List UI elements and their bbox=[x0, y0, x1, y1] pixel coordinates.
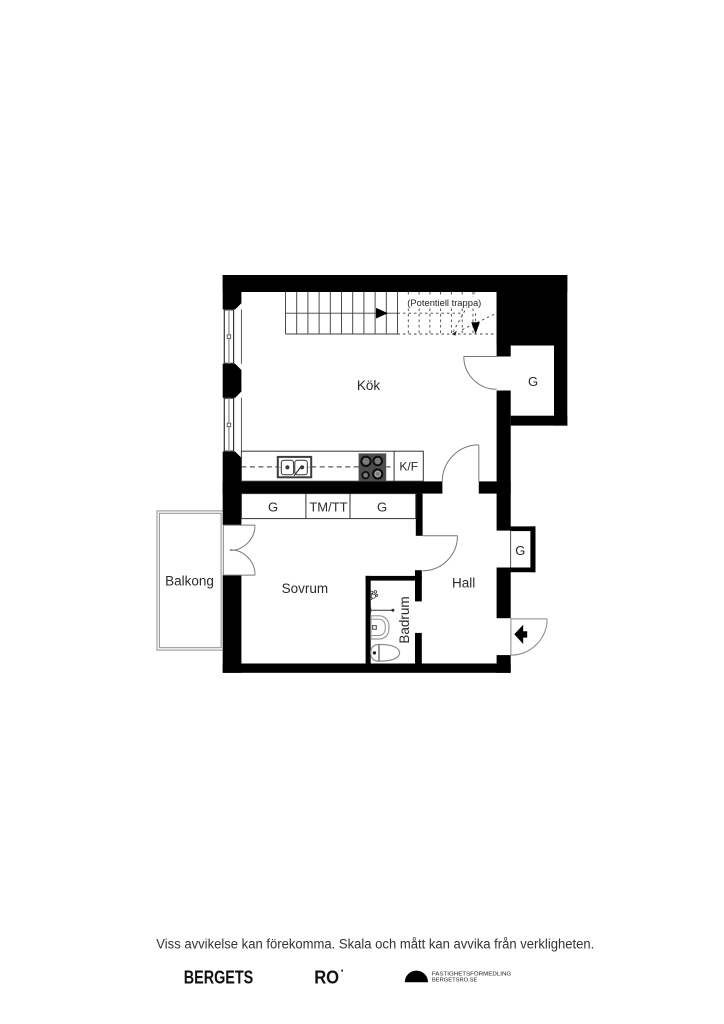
svg-text:G: G bbox=[528, 374, 538, 389]
svg-text:G: G bbox=[268, 499, 278, 514]
svg-text:FASTIGHETSFÖRMEDLING: FASTIGHETSFÖRMEDLING bbox=[432, 971, 511, 978]
svg-text:Sovrum: Sovrum bbox=[282, 581, 329, 596]
svg-text:BERGETS: BERGETS bbox=[184, 967, 254, 988]
svg-text:G: G bbox=[377, 499, 387, 514]
svg-text:Balkong: Balkong bbox=[165, 573, 214, 588]
svg-text:K/F: K/F bbox=[399, 460, 418, 474]
svg-text:Hall: Hall bbox=[452, 575, 475, 590]
svg-text:RO: RO bbox=[314, 967, 339, 988]
svg-text:Viss avvikelse kan förekomma.: Viss avvikelse kan förekomma. Skala och … bbox=[156, 936, 594, 951]
svg-text:G: G bbox=[515, 543, 525, 558]
svg-text:Badrum: Badrum bbox=[397, 596, 412, 643]
svg-text:TM/TT: TM/TT bbox=[309, 499, 347, 514]
svg-text:Kök: Kök bbox=[357, 378, 381, 393]
svg-text:(Potentiell trappa): (Potentiell trappa) bbox=[407, 298, 481, 308]
svg-text:BERGETSRO.SE: BERGETSRO.SE bbox=[432, 978, 478, 984]
